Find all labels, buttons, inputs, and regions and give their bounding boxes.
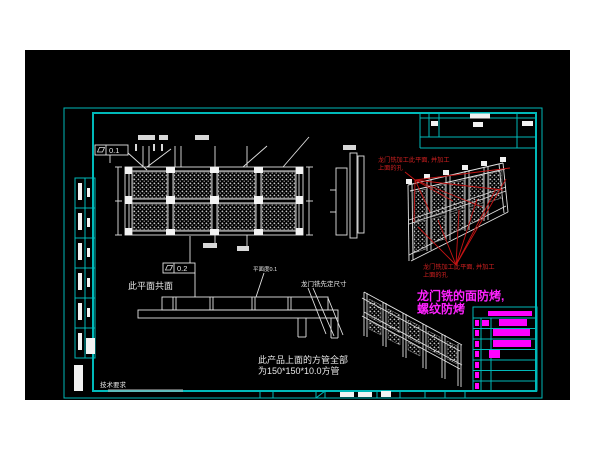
gantry-note: 龙门铣先定尺寸 bbox=[301, 279, 347, 288]
product-note-line1: 此产品上面的方管全部 bbox=[258, 354, 348, 365]
dim-text-mark bbox=[203, 243, 217, 248]
title-strip-table bbox=[420, 113, 536, 148]
elevation-notes: 此平面共面 平面度0.1 龙门铣先定尺寸 bbox=[128, 265, 347, 336]
red-note-bottom-line1: 龙门铣加工此平面, 并加工 bbox=[423, 263, 495, 271]
dim-text-mark bbox=[159, 135, 168, 140]
red-note-top-line2: 上面的孔 bbox=[378, 164, 403, 172]
title-cell-mark bbox=[470, 114, 490, 119]
dim-text-mark bbox=[138, 135, 155, 140]
side-section-view bbox=[330, 145, 364, 238]
magenta-note-line1: 龙门铣的面防烤, bbox=[417, 288, 504, 303]
cad-canvas[interactable]: 0.1 bbox=[25, 50, 570, 400]
table-entry-bar bbox=[493, 340, 531, 347]
table-entry-bar bbox=[493, 329, 530, 336]
table-entry-bar bbox=[489, 350, 500, 358]
drawing-page: 0.1 bbox=[0, 0, 600, 450]
cad-drawing: 0.1 bbox=[25, 50, 570, 400]
coplanar-note: 此平面共面 bbox=[128, 280, 173, 291]
tech-requirements-label: 技术要求 bbox=[100, 380, 127, 389]
revision-white-box bbox=[86, 338, 95, 354]
magenta-note-line2: 螺纹防烤 bbox=[417, 301, 465, 316]
fcf-bottom-value: 0.2 bbox=[177, 264, 187, 273]
fcf-top-value: 0.1 bbox=[109, 146, 119, 155]
revision-white-bar bbox=[74, 365, 83, 391]
flatness-symbol-icon bbox=[166, 266, 173, 271]
dim-text-mark bbox=[237, 246, 249, 251]
dim-text-mark bbox=[195, 135, 209, 140]
strip-cell-mark bbox=[340, 392, 354, 397]
strip-cell-mark bbox=[358, 392, 372, 397]
title-cell-mark bbox=[522, 121, 533, 126]
front-elevation-view bbox=[138, 297, 343, 338]
parts-table bbox=[473, 307, 537, 391]
title-cell-mark bbox=[473, 122, 483, 127]
revision-strip bbox=[74, 178, 95, 391]
flatness-fcf-top: 0.1 bbox=[95, 145, 147, 170]
bottom-notes: 此产品上面的方管全部 为150*150*10.0方管 技术要求 bbox=[100, 354, 348, 392]
tech-requirements-body-mark bbox=[108, 389, 183, 392]
product-note-line2: 为150*150*10.0方管 bbox=[258, 365, 340, 376]
strip-cell-mark bbox=[381, 391, 391, 397]
red-note-top-line1: 龙门铣加工此平面, 并加工 bbox=[378, 156, 450, 164]
red-note-bottom-line2: 上面的孔 bbox=[423, 271, 448, 279]
title-cell-mark bbox=[431, 121, 438, 126]
plan-view bbox=[115, 135, 313, 251]
table-header-mark bbox=[488, 311, 532, 316]
table-entry-bar bbox=[499, 319, 527, 326]
flatness-symbol-icon bbox=[98, 148, 105, 153]
platform-flatness-note: 平面度0.1 bbox=[253, 265, 277, 273]
bottom-title-strip bbox=[260, 391, 465, 398]
dim-text-mark bbox=[343, 145, 356, 150]
drawing-frame-inner bbox=[93, 113, 536, 391]
